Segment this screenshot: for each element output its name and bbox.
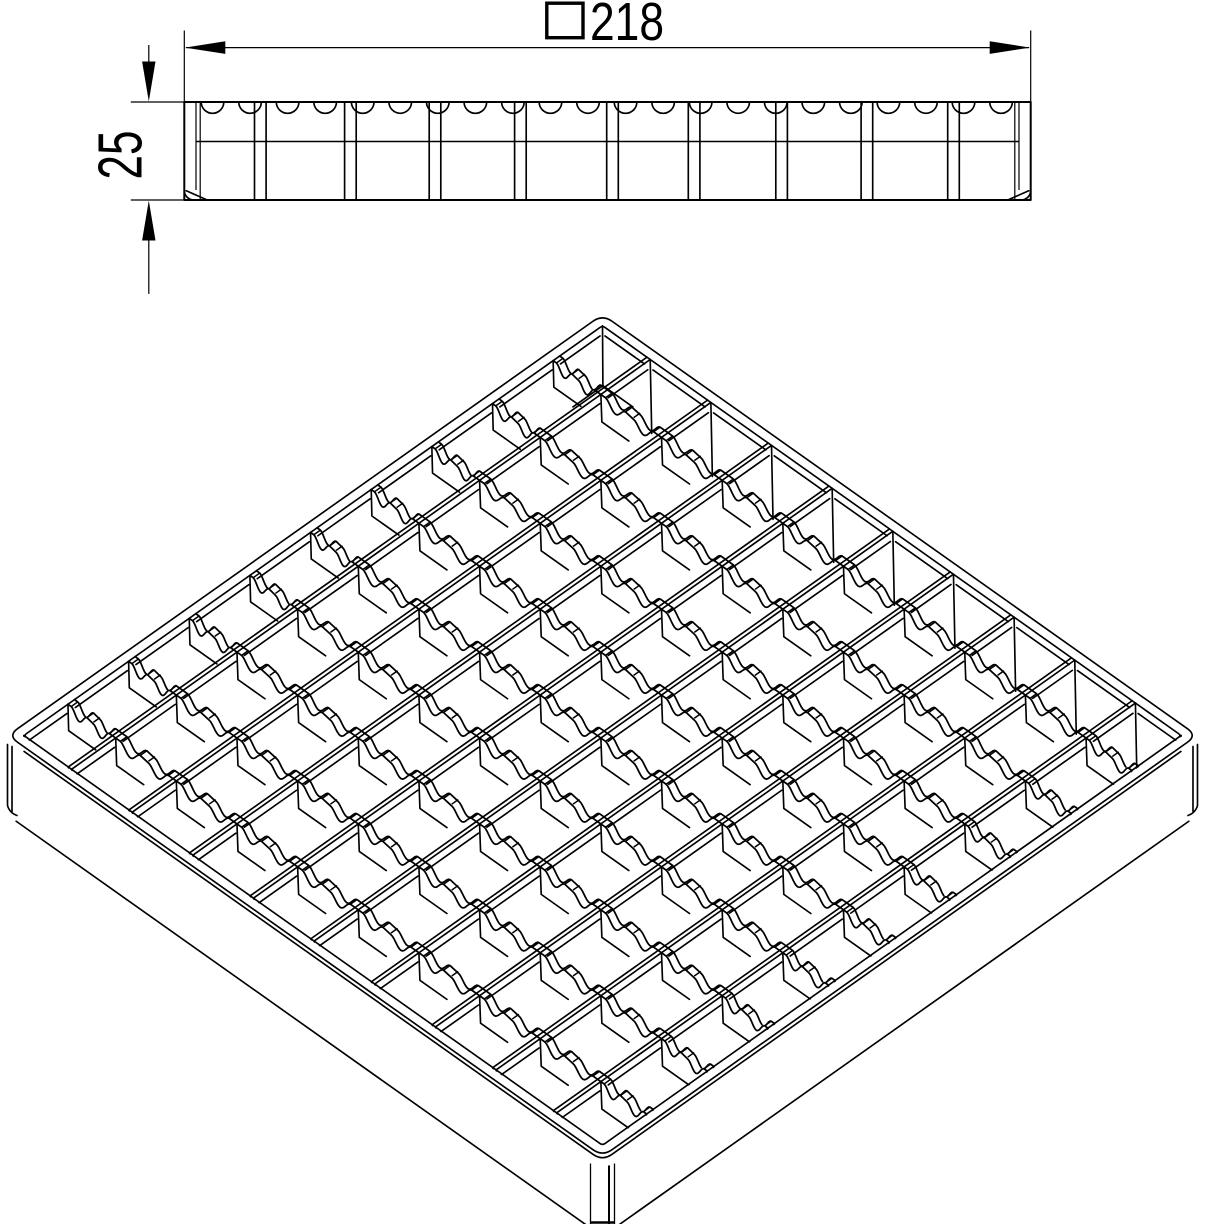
svg-text:218: 218 <box>590 0 664 52</box>
svg-text:25: 25 <box>87 131 156 180</box>
